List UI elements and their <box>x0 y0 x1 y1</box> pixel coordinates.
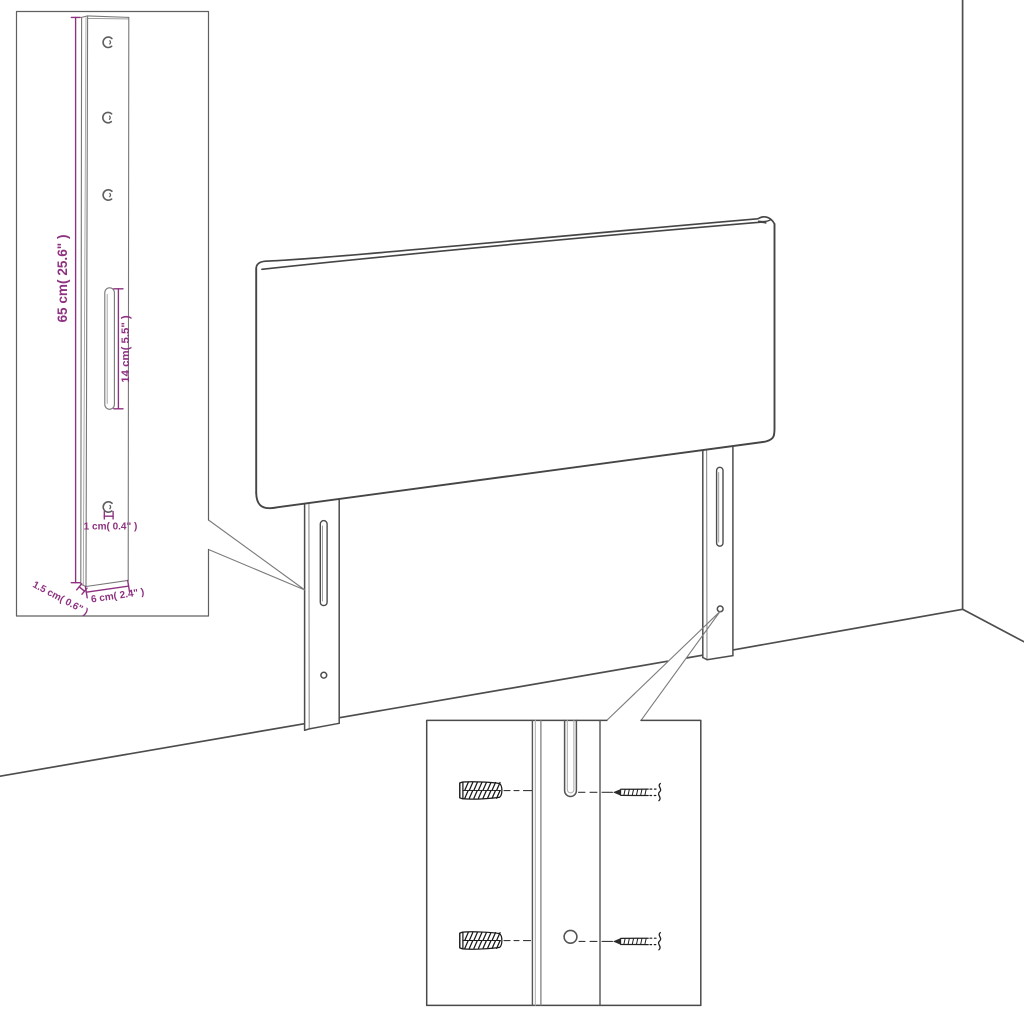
svg-text:14 cm( 5.5" ): 14 cm( 5.5" ) <box>120 315 132 383</box>
svg-text:1 cm( 0.4" ): 1 cm( 0.4" ) <box>84 522 138 533</box>
svg-text:65 cm( 25.6" ): 65 cm( 25.6" ) <box>55 234 70 322</box>
svg-text:6 cm( 2.4" ): 6 cm( 2.4" ) <box>90 587 145 606</box>
